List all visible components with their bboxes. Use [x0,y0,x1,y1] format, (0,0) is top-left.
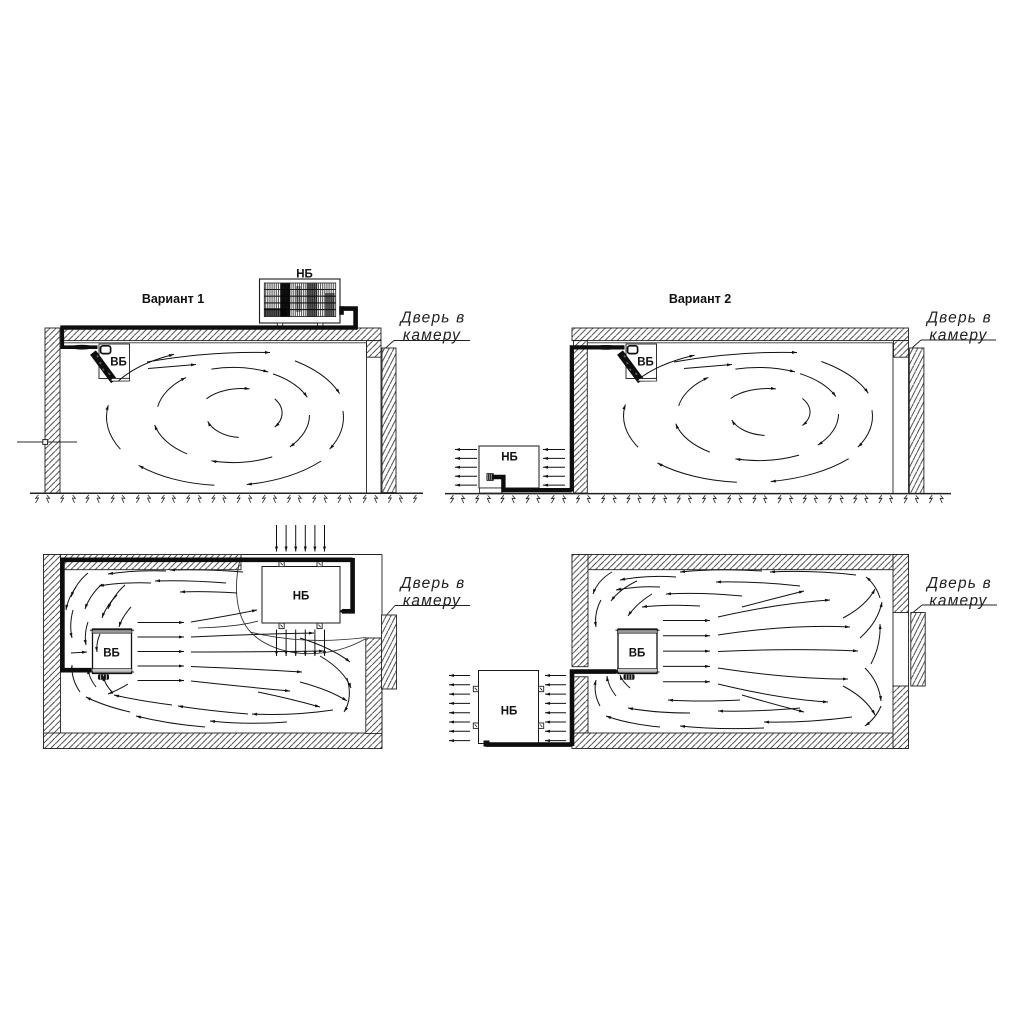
svg-text:НБ: НБ [501,452,518,464]
svg-text:НБ: НБ [293,591,310,603]
svg-text:Дверь в: Дверь в [399,575,466,592]
svg-text:камеру: камеру [929,327,987,344]
svg-text:Дверь в: Дверь в [925,310,992,327]
svg-text:камеру: камеру [929,593,987,610]
svg-text:камеру: камеру [403,593,461,610]
svg-text:Вариант 1: Вариант 1 [142,292,204,306]
svg-text:НБ: НБ [296,269,313,281]
svg-text:Вариант 2: Вариант 2 [669,292,731,306]
svg-text:НБ: НБ [501,706,518,718]
svg-text:ВБ: ВБ [103,648,120,660]
svg-text:ВБ: ВБ [629,648,646,660]
svg-text:Дверь в: Дверь в [399,310,466,327]
svg-text:ВБ: ВБ [637,357,654,369]
svg-text:ВБ: ВБ [110,357,127,369]
svg-text:камеру: камеру [403,327,461,344]
svg-text:Дверь в: Дверь в [925,575,992,592]
